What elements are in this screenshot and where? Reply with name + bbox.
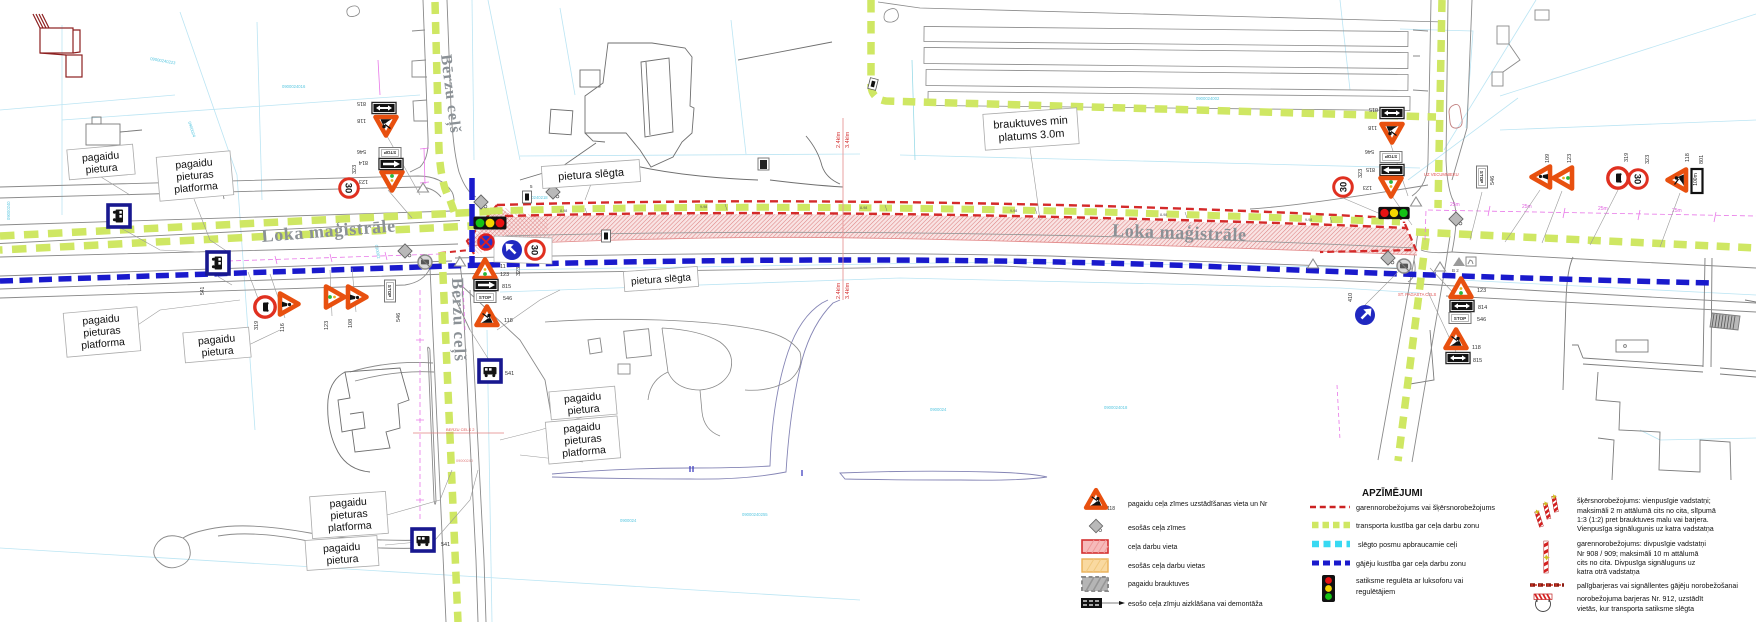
svg-text:546: 546 — [503, 296, 512, 302]
svg-text:323: 323 — [516, 267, 522, 276]
svg-text:541: 541 — [441, 542, 450, 548]
svg-text:815: 815 — [502, 284, 511, 290]
svg-text:katra otrā vadstatņa: katra otrā vadstatņa — [1577, 568, 1640, 576]
svg-text:slēgto posmu apbraucamie ceļi: slēgto posmu apbraucamie ceļi — [1358, 540, 1457, 549]
svg-text:8-98: 8-98 — [1160, 213, 1167, 217]
svg-text:541: 541 — [200, 286, 206, 295]
svg-text:0900024002: 0900024002 — [1196, 96, 1220, 101]
svg-text:815: 815 — [1369, 106, 1378, 112]
svg-text:9-98: 9-98 — [1305, 218, 1312, 222]
svg-text:118: 118 — [1472, 345, 1481, 351]
svg-text:maksimāli 2 m attālumā cits no: maksimāli 2 m attālumā cits no cita, slī… — [1577, 507, 1716, 515]
svg-text:UZ VECUMNIEKU: UZ VECUMNIEKU — [1424, 172, 1459, 177]
svg-text:323: 323 — [352, 165, 358, 174]
svg-text:APZĪMĒJUMI: APZĪMĒJUMI — [1362, 488, 1423, 499]
svg-text:1:3 (1:2) pret brauktuves malu: 1:3 (1:2) pret brauktuves malu vai barje… — [1577, 516, 1709, 524]
svg-text:815: 815 — [1473, 358, 1482, 364]
svg-text:09000240: 09000240 — [6, 201, 11, 220]
svg-text:123: 123 — [1363, 184, 1372, 190]
svg-text:0900024: 0900024 — [620, 518, 637, 523]
svg-text:garennorobežojums: divpusīgie: garennorobežojums: divpusīgie vadstatņi — [1577, 540, 1706, 548]
svg-text:116: 116 — [280, 323, 286, 332]
svg-text:satiksme regulēta ar luksoforu: satiksme regulēta ar luksoforu vai — [1356, 576, 1463, 585]
svg-text:0900024018: 0900024018 — [1104, 405, 1128, 410]
svg-text:2.4klm: 2.4klm — [836, 131, 842, 148]
svg-text:323: 323 — [1645, 155, 1651, 164]
svg-text:546: 546 — [1365, 148, 1374, 154]
svg-text:118: 118 — [1685, 153, 1691, 162]
svg-text:09000240255: 09000240255 — [742, 512, 768, 517]
svg-text:0900024: 0900024 — [930, 407, 947, 412]
svg-text:esošo ceļa zīmju aizklāšana va: esošo ceļa zīmju aizklāšana vai demontāž… — [1128, 601, 1263, 608]
svg-text:25m: 25m — [1450, 202, 1460, 208]
svg-text:118: 118 — [1107, 506, 1115, 512]
svg-text:0900024016: 0900024016 — [282, 84, 306, 89]
svg-text:3.4klm: 3.4klm — [845, 131, 851, 148]
svg-text:801: 801 — [1699, 155, 1705, 164]
svg-text:118: 118 — [1368, 124, 1377, 130]
svg-text:palīgbarjeras vai signāllentes: palīgbarjeras vai signāllentes gājēju no… — [1577, 582, 1738, 590]
svg-text:šķērsnorobežojums: vienpusīgie: šķērsnorobežojums: vienpusīgie vadstatņi… — [1577, 497, 1711, 505]
svg-text:regulētājiem: regulētājiem — [1356, 587, 1395, 596]
svg-text:123: 123 — [500, 272, 509, 278]
svg-text:546: 546 — [1477, 317, 1486, 323]
svg-text:Vienpusīga signālugunis uz kat: Vienpusīga signālugunis uz katra vadstat… — [1577, 525, 1714, 533]
svg-text:BERZU CELS 2: BERZU CELS 2 — [446, 427, 475, 432]
svg-text:pagaidu brauktuves: pagaidu brauktuves — [1128, 581, 1190, 588]
svg-text:319: 319 — [254, 321, 260, 330]
svg-text:123: 123 — [359, 178, 368, 184]
svg-text:546: 546 — [357, 148, 366, 154]
svg-text:norobežojuma barjeras Nr. 912,: norobežojuma barjeras Nr. 912, uzstādīt — [1577, 595, 1703, 603]
svg-text:410: 410 — [1348, 293, 1354, 302]
svg-text:108: 108 — [348, 319, 354, 328]
svg-text:11: 11 — [500, 264, 506, 270]
svg-text:Nr 908 / 909; maksimāli 10 m a: Nr 908 / 909; maksimāli 10 m attālumā — [1577, 550, 1698, 558]
svg-text:123: 123 — [1477, 288, 1486, 294]
svg-text:546: 546 — [1490, 176, 1496, 185]
svg-text:9-98: 9-98 — [1010, 209, 1017, 213]
svg-text:09000240: 09000240 — [456, 459, 473, 463]
svg-text:vietās, kur transporta satiksm: vietās, kur transporta satiksme slēgta — [1577, 605, 1694, 613]
svg-text:815: 815 — [1366, 166, 1375, 172]
svg-text:123: 123 — [1567, 154, 1573, 163]
svg-text:109: 109 — [1545, 154, 1551, 163]
svg-text:2.4klm: 2.4klm — [836, 282, 842, 299]
svg-text:25m: 25m — [1598, 206, 1608, 212]
svg-text:ceļa darbu vieta: ceļa darbu vieta — [1128, 544, 1178, 551]
svg-text:cits no cita. Divpusīga signāl: cits no cita. Divpusīga signāluguns uz — [1577, 559, 1696, 567]
svg-text:814: 814 — [359, 159, 368, 165]
svg-text:815: 815 — [357, 100, 366, 106]
svg-text:118: 118 — [504, 318, 513, 324]
svg-text:pagaidu ceļa zīmes uzstādīšana: pagaidu ceļa zīmes uzstādīšanas vieta un… — [1128, 501, 1268, 508]
svg-text:118: 118 — [357, 117, 366, 123]
svg-text:123: 123 — [324, 321, 330, 330]
svg-text:323: 323 — [1358, 169, 1364, 178]
svg-text:ST. PAGASTA CELS: ST. PAGASTA CELS — [1398, 292, 1436, 297]
svg-text:541: 541 — [505, 371, 514, 377]
svg-text:pietura: pietura — [326, 553, 359, 567]
svg-text:546: 546 — [396, 313, 402, 322]
svg-text:transporta kustība gar ceļa da: transporta kustība gar ceļa darbu zonu — [1356, 521, 1479, 530]
svg-text:gājēju kustība gar ceļa darbu: gājēju kustība gar ceļa darbu zonu — [1356, 559, 1466, 568]
svg-text:319: 319 — [1624, 153, 1630, 162]
svg-text:garennorobežojums vai šķērsnor: garennorobežojums vai šķērsnorobežojums — [1356, 503, 1495, 512]
svg-text:3.4klm: 3.4klm — [845, 282, 851, 299]
svg-text:9-98: 9-98 — [700, 205, 707, 209]
svg-text:8-98: 8-98 — [560, 209, 567, 213]
svg-text:8-98: 8-98 — [860, 206, 867, 210]
svg-text:B 2: B 2 — [1452, 268, 1459, 273]
svg-text:esošās ceļa zīmes: esošās ceļa zīmes — [1128, 525, 1186, 532]
svg-text:esošās ceļa darbu vietas: esošās ceļa darbu vietas — [1128, 563, 1206, 570]
svg-text:814: 814 — [1478, 305, 1487, 311]
svg-text:100m: 100m — [1693, 173, 1699, 186]
